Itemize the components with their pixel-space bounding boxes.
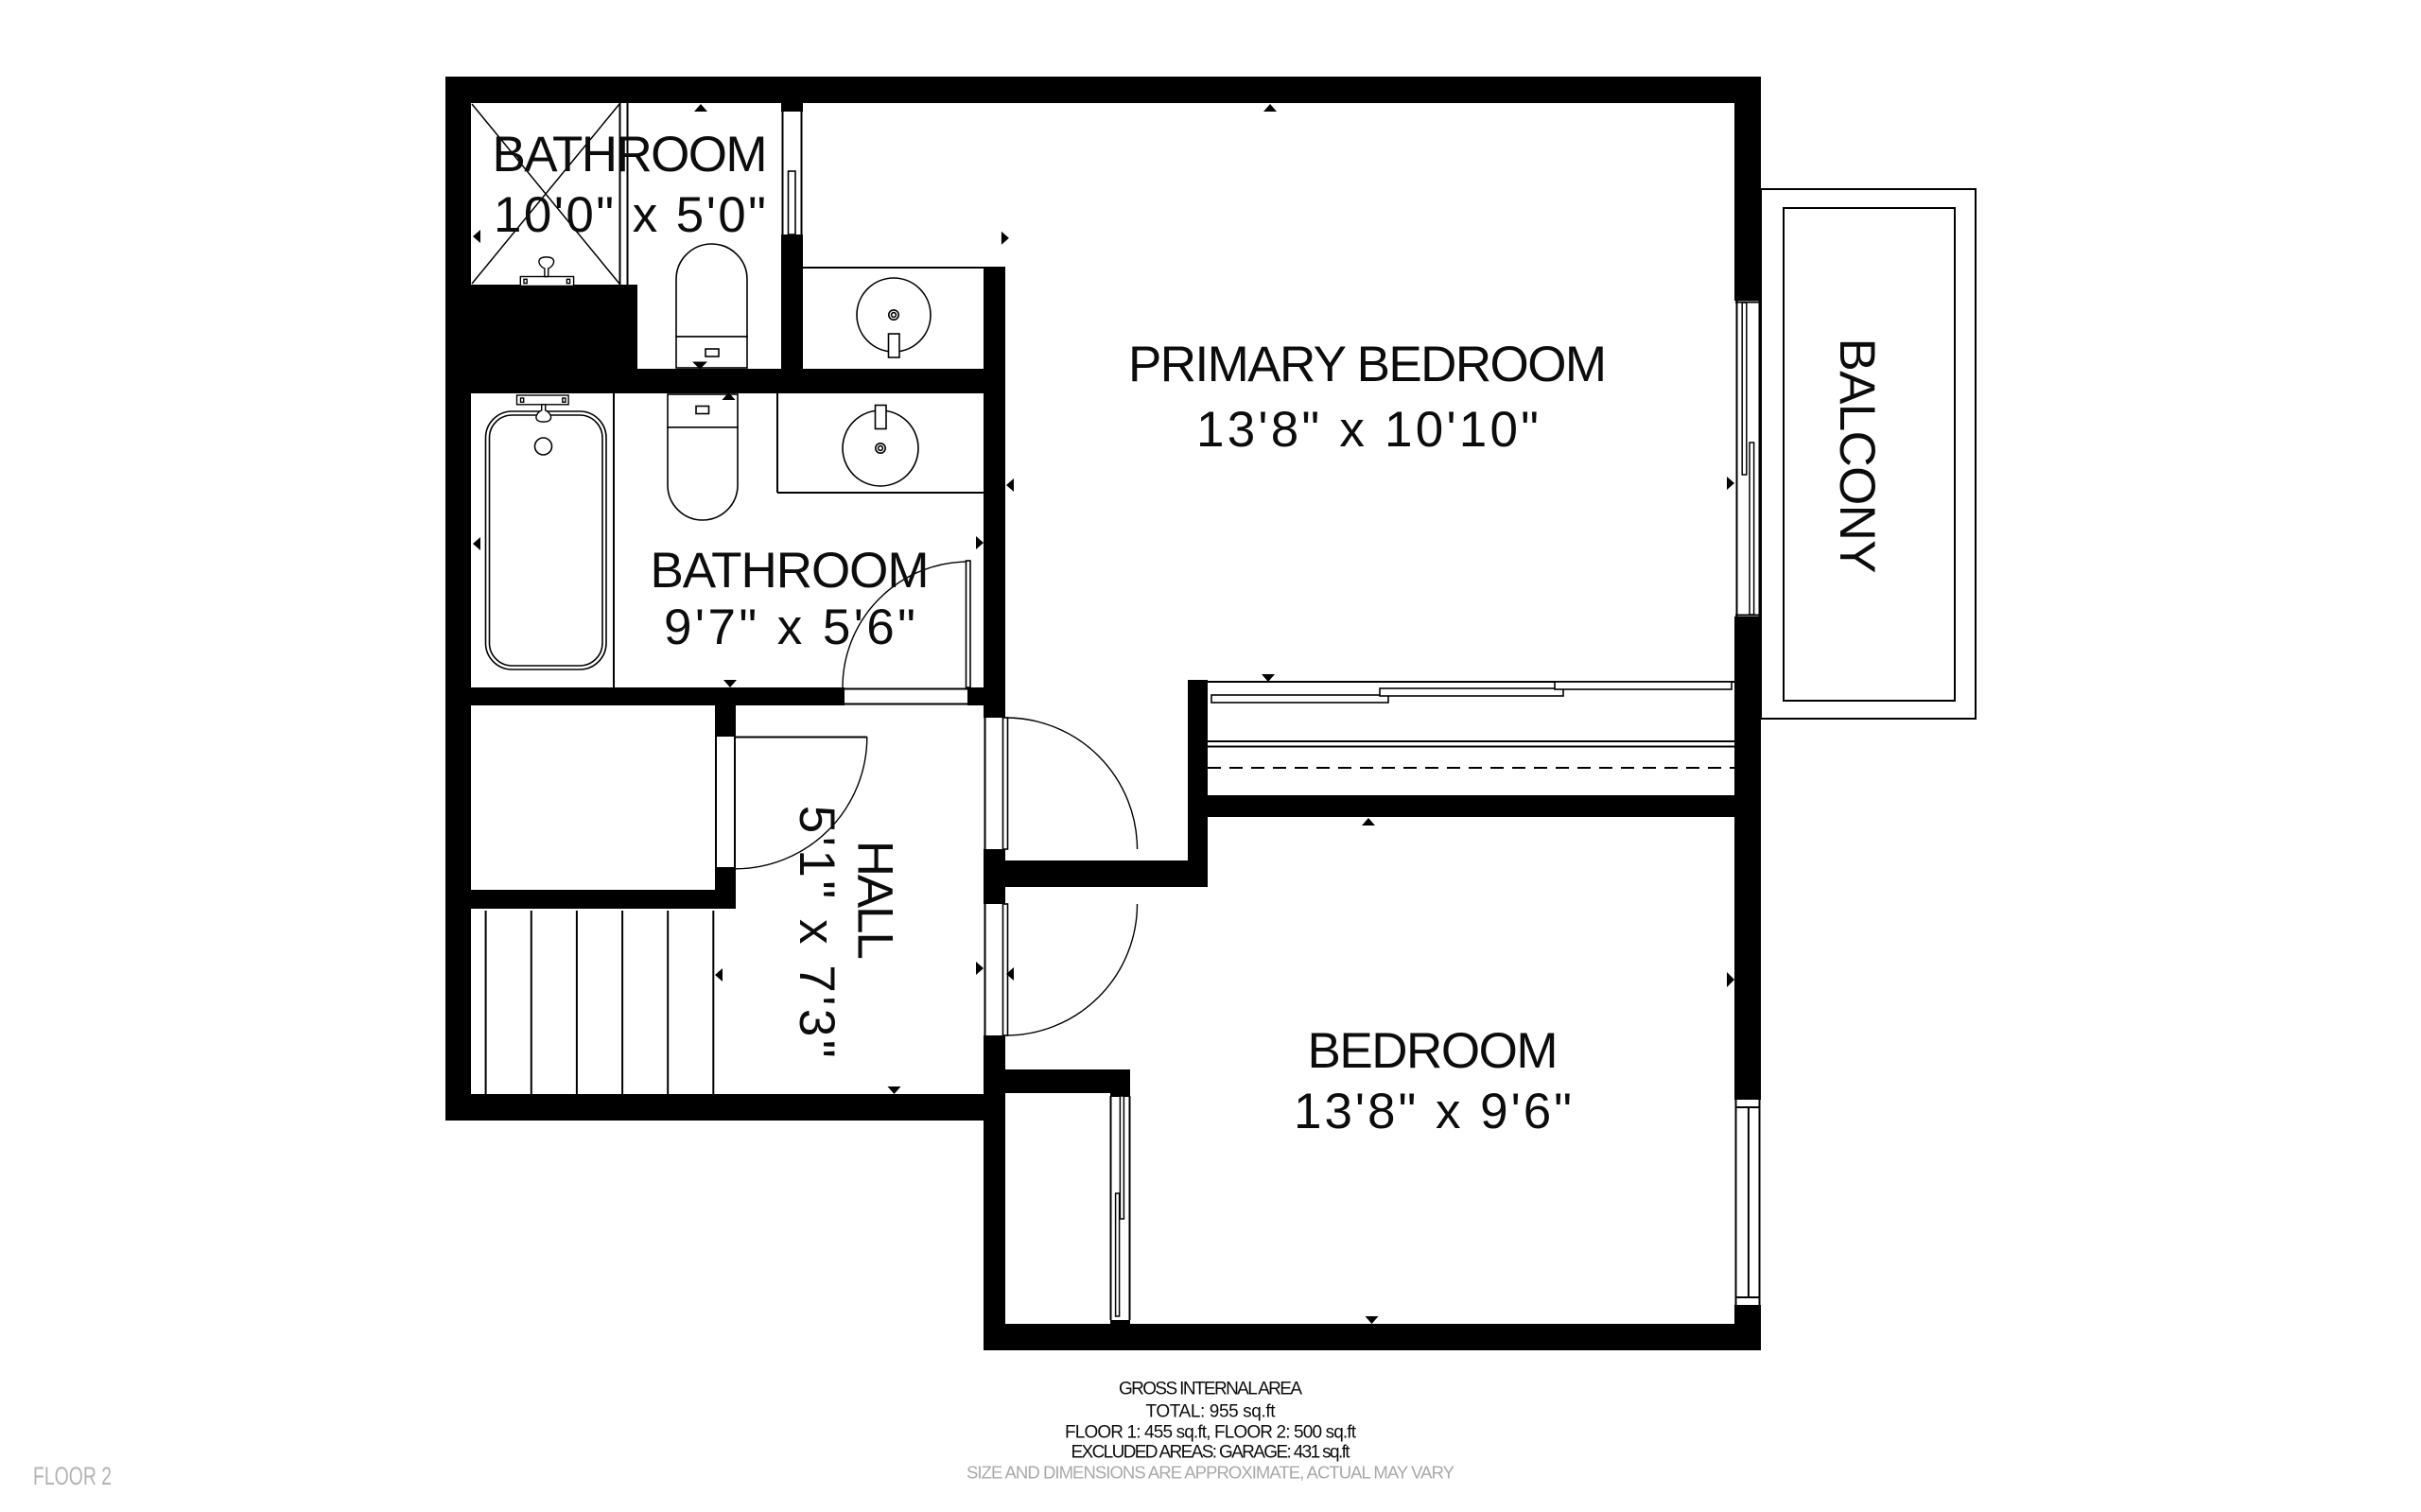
svg-text:10'0" x 5'0": 10'0" x 5'0": [494, 187, 766, 243]
svg-text:GROSS INTERNAL AREA: GROSS INTERNAL AREA: [1119, 1380, 1302, 1399]
svg-text:BALCONY: BALCONY: [1829, 339, 1885, 574]
svg-text:SIZE AND DIMENSIONS ARE APPROX: SIZE AND DIMENSIONS ARE APPROXIMATE, ACT…: [967, 1463, 1454, 1483]
svg-text:13'8" x 9'6": 13'8" x 9'6": [1294, 1084, 1572, 1139]
svg-text:BEDROOM: BEDROOM: [1308, 1023, 1559, 1079]
svg-text:9'7" x 5'6": 9'7" x 5'6": [664, 600, 915, 655]
svg-text:PRIMARY BEDROOM: PRIMARY BEDROOM: [1128, 337, 1607, 392]
svg-text:5'1" x 7'3": 5'1" x 7'3": [789, 806, 845, 1058]
svg-text:FLOOR 1: 455 sq.ft, FLOOR 2: 5: FLOOR 1: 455 sq.ft, FLOOR 2: 500 sq.ft: [1065, 1423, 1357, 1443]
svg-text:FLOOR 2: FLOOR 2: [33, 1462, 112, 1490]
svg-text:BATHROOM: BATHROOM: [493, 127, 768, 182]
svg-text:HALL: HALL: [847, 841, 903, 960]
svg-text:BATHROOM: BATHROOM: [651, 543, 930, 599]
svg-text:EXCLUDED AREAS: GARAGE: 431 sq: EXCLUDED AREAS: GARAGE: 431 sq.ft: [1071, 1443, 1351, 1463]
svg-text:TOTAL: 955 sq.ft: TOTAL: 955 sq.ft: [1146, 1402, 1277, 1422]
